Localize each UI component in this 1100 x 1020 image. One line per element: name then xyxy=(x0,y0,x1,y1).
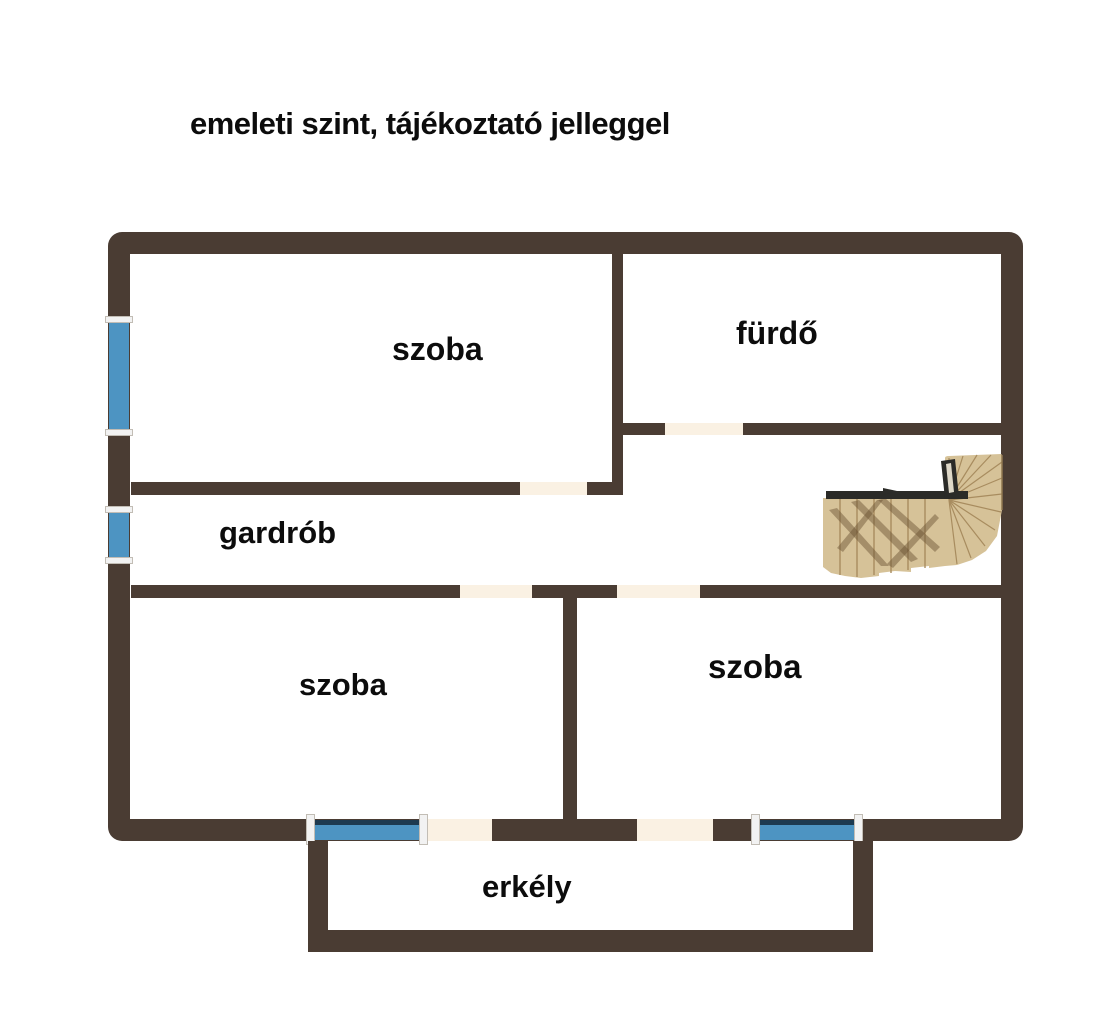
room-label-bottom-right: szoba xyxy=(708,648,802,686)
page-title: emeleti szint, tájékoztató jelleggel xyxy=(190,106,670,142)
room-label-wardrobe: gardrób xyxy=(219,515,336,551)
window-jamb xyxy=(105,429,133,436)
balcony-wall-bottom xyxy=(308,930,873,952)
interior-wall-room-bathroom-divider xyxy=(612,252,623,495)
door-opening-room-top xyxy=(520,482,587,495)
window-left-upper xyxy=(109,323,129,429)
door-opening-bathroom xyxy=(665,423,743,435)
door-opening-room-bottom-right xyxy=(617,585,700,598)
interior-wall-bathroom-bottom-b xyxy=(743,423,1002,435)
room-label-balcony: erkély xyxy=(482,869,572,905)
interior-wall-corridor-bottom-c xyxy=(700,585,1002,598)
window-jamb xyxy=(419,814,428,845)
window-left-lower xyxy=(109,513,129,557)
window-jamb xyxy=(105,557,133,564)
door-opening-room-bottom-left xyxy=(460,585,532,598)
interior-wall-bottom-rooms-divider xyxy=(563,585,577,841)
window-bottom-left xyxy=(315,820,419,840)
interior-wall-corridor-top-b xyxy=(587,482,623,495)
staircase xyxy=(823,452,1003,580)
window-jamb xyxy=(105,506,133,513)
stairs-icon xyxy=(823,452,1003,580)
window-jamb xyxy=(751,814,760,845)
interior-wall-corridor-bottom-a xyxy=(131,585,460,598)
room-label-bottom-left: szoba xyxy=(299,667,387,703)
window-bottom-right xyxy=(760,820,854,840)
door-opening-balcony-left xyxy=(428,819,492,841)
room-label-top: szoba xyxy=(392,331,483,368)
door-opening-balcony-right xyxy=(637,819,713,841)
interior-wall-bathroom-bottom-a xyxy=(623,423,665,435)
room-label-bathroom: fürdő xyxy=(736,315,818,352)
floor-plan-canvas: emeleti szint, tájékoztató jelleggel xyxy=(0,0,1100,1020)
interior-wall-corridor-top-a xyxy=(131,482,520,495)
window-jamb xyxy=(105,316,133,323)
